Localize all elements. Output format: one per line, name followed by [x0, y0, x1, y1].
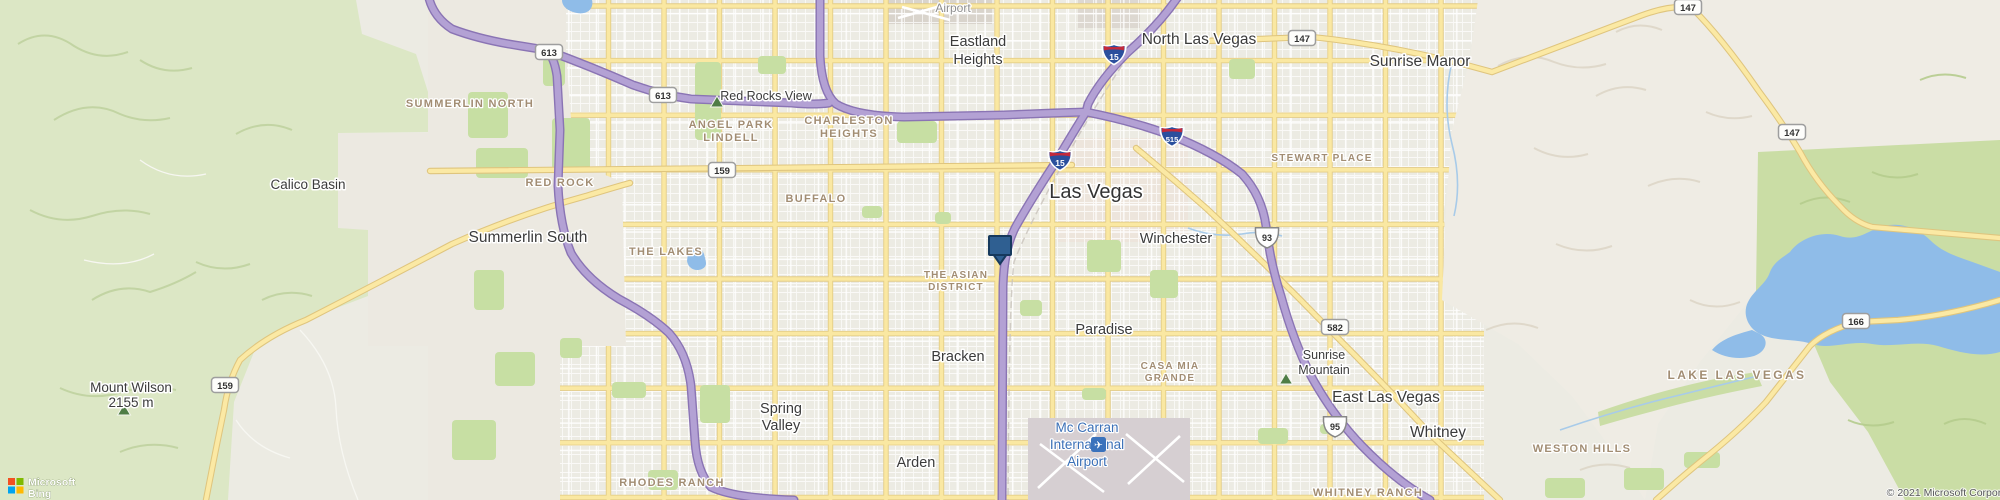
map-label-whitney: Whitney [1410, 424, 1466, 441]
brand-microsoft: Microsoft [28, 477, 76, 489]
svg-text:159: 159 [217, 381, 233, 392]
map-label-paradise: Paradise [1075, 322, 1132, 338]
map-container: 15155159395613613159159147147147582166Ca… [0, 0, 2000, 500]
park-area [1150, 270, 1178, 298]
park-area [452, 420, 496, 460]
svg-text:515: 515 [1166, 135, 1179, 144]
svg-text:582: 582 [1327, 323, 1343, 334]
park-area [1082, 388, 1106, 400]
map-label-casa-mia: CASA MIAGRANDE [1141, 361, 1200, 384]
map-label-spring: SpringValley [760, 401, 802, 434]
route-shield-613: 613 [536, 45, 563, 60]
park-area [897, 121, 937, 143]
map-label-weston-hills: WESTON HILLS [1533, 443, 1632, 455]
route-shield-147: 147 [1675, 0, 1702, 15]
svg-text:95: 95 [1330, 422, 1340, 432]
brand-bing: Bing [28, 488, 51, 500]
park-area [495, 352, 535, 386]
svg-text:✈: ✈ [1094, 440, 1103, 452]
park-area [758, 56, 786, 74]
park-area [474, 270, 504, 310]
park-area [1258, 428, 1288, 444]
svg-text:613: 613 [655, 91, 671, 102]
map-label-red-rocks-view: Red Rocks View [720, 89, 812, 103]
park-area [1624, 468, 1664, 490]
park-area [862, 206, 882, 218]
svg-text:613: 613 [541, 48, 557, 59]
map-label-arden: Arden [897, 455, 936, 471]
park-area [612, 382, 646, 398]
map-label-summerlin-south: Summerlin South [469, 229, 588, 246]
park-area [1020, 300, 1042, 316]
svg-text:159: 159 [714, 166, 730, 177]
map-label-the-asian: THE ASIANDISTRICT [924, 270, 988, 293]
route-shield-147: 147 [1289, 31, 1316, 46]
svg-text:15: 15 [1109, 52, 1119, 62]
map-label-sunrise-manor: Sunrise Manor [1370, 53, 1471, 70]
map-label-calico-basin: Calico Basin [270, 177, 345, 192]
map-label-east-las-vegas: East Las Vegas [1332, 389, 1440, 406]
map-label-summerlin-north: SUMMERLIN NORTH [406, 98, 534, 110]
map-label-sunrise: SunriseMountain [1298, 348, 1349, 377]
route-shield-582: 582 [1322, 320, 1349, 335]
map-label-airport: Airport [935, 1, 971, 15]
park-area [1087, 240, 1121, 272]
park-area [1229, 59, 1255, 79]
park-area [560, 338, 582, 358]
route-shield-159: 159 [212, 378, 239, 393]
map-label-las-vegas: Las Vegas [1049, 181, 1142, 203]
route-shield-159: 159 [709, 163, 736, 178]
map-label-winchester: Winchester [1140, 231, 1213, 247]
route-shield-147: 147 [1779, 125, 1806, 140]
map-label-whitney-ranch: WHITNEY RANCH [1313, 487, 1423, 499]
map-label-buffalo: BUFFALO [785, 193, 846, 205]
svg-text:166: 166 [1848, 317, 1864, 328]
map-label-red-rock: RED ROCK [525, 177, 594, 189]
svg-text:93: 93 [1262, 233, 1272, 243]
map-label-bracken: Bracken [931, 349, 984, 365]
airport-icon: ✈ [1091, 437, 1106, 452]
park-area [1545, 478, 1585, 498]
microsoft-logo-icon [8, 478, 15, 485]
svg-text:147: 147 [1680, 3, 1696, 14]
park-area [935, 212, 951, 224]
microsoft-logo-icon [8, 487, 15, 494]
svg-text:147: 147 [1784, 128, 1800, 139]
map-label-north-las-vegas: North Las Vegas [1142, 31, 1257, 48]
map-label-lake-las-vegas: LAKE LAS VEGAS [1668, 368, 1807, 382]
map-canvas[interactable]: 15155159395613613159159147147147582166Ca… [0, 0, 2000, 500]
map-label-the-lakes: THE LAKES [629, 246, 703, 258]
route-shield-166: 166 [1843, 314, 1870, 329]
park-area [700, 385, 730, 423]
map-label-stewart-place: STEWART PLACE [1271, 153, 1372, 164]
map-label-rhodes-ranch: RHODES RANCH [619, 477, 724, 489]
microsoft-logo-icon [17, 487, 24, 494]
copyright-text: © 2021 Microsoft Corporation © 2021 TomT… [1887, 487, 2000, 499]
route-shield-613: 613 [650, 88, 677, 103]
microsoft-logo-icon [17, 478, 24, 485]
svg-text:15: 15 [1055, 158, 1065, 168]
svg-text:147: 147 [1294, 34, 1310, 45]
